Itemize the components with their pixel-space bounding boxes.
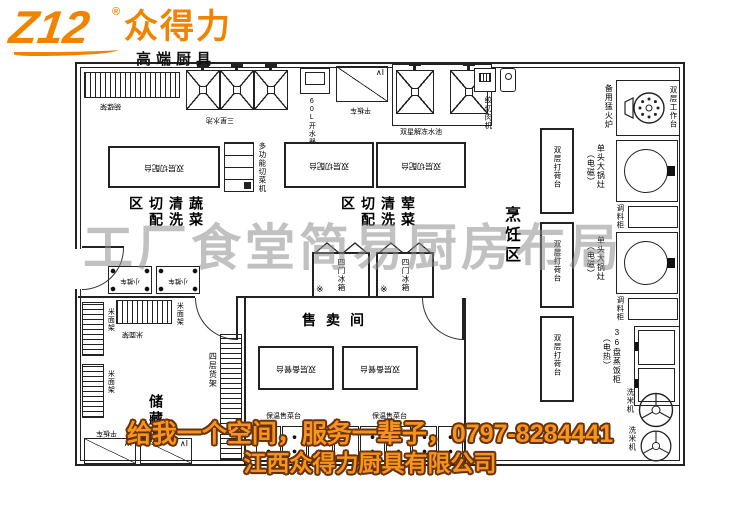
prep-table-1: 双层备餐台 — [258, 346, 334, 390]
three-star-sink-1 — [186, 70, 220, 110]
veg-cut-table-label: 双层切配台 — [144, 163, 184, 171]
meat-cut-table-1-label: 双层切配台 — [309, 161, 349, 169]
rice-flour-rack-left-2 — [82, 364, 104, 418]
four-layer-shelf-label: 四层货架 — [208, 352, 216, 390]
steamer-door-top — [638, 330, 675, 365]
wok-stove-1 — [616, 140, 678, 202]
backup-burner-label: 备用猛火炉 — [604, 84, 612, 130]
service-table-1: 双层打荷台 — [540, 128, 574, 214]
flat-cart-top: ∧I — [336, 66, 388, 102]
service-table-3: 双层打荷台 — [540, 316, 574, 402]
meat-cut-table-2-label: 双层切配台 — [401, 161, 441, 169]
wok-stove-2 — [616, 232, 678, 294]
rice-flour-rack-top-label2: 米面架 — [176, 302, 183, 328]
meat-cut-table-2: 双层切配台 — [376, 142, 466, 188]
veg-cutter-machine — [224, 142, 254, 192]
burner-icon — [619, 85, 669, 131]
rice-flour-rack-top — [116, 300, 172, 324]
watermark-text: 工厂食堂简易厨房布局 — [83, 208, 623, 280]
rice-flour-rack-left-2-label: 米面架 — [107, 370, 114, 396]
faucet-icon — [409, 63, 421, 66]
company-logo: Z12 ® 众得力 高端厨具 — [8, 4, 278, 68]
logo-name: 众得力 — [124, 10, 232, 44]
steamer-handle — [635, 379, 638, 388]
bowl-rack-label: 碗碟架 — [100, 102, 121, 109]
spice-cabinet-1 — [628, 206, 678, 228]
spice-cabinet-2 — [628, 298, 678, 320]
work-table-label: 双层工作台 — [669, 86, 677, 132]
logo-tagline: 高端厨具 — [136, 48, 216, 69]
wok-burner-tab — [667, 166, 675, 176]
cart-direction-mark: ∧I — [376, 69, 384, 77]
faucet-icon — [463, 63, 475, 66]
wok-ring — [624, 241, 668, 285]
rice-flour-rack-left-1 — [82, 302, 104, 356]
veg-cutter-motor — [244, 182, 251, 189]
rice-steamer-label: 36盘蒸饭柜 — [612, 328, 620, 380]
rice-flour-rack-top-label: 米面架 — [122, 330, 143, 337]
prep-table-2: 双层备餐台 — [342, 346, 418, 390]
rice-steamer-note: （电热） — [602, 334, 610, 368]
logo-swoosh — [14, 48, 118, 56]
steamer-handle — [635, 342, 638, 351]
meat-cut-table-1: 双层切配台 — [284, 142, 374, 188]
kitchen-floorplan-canvas: 碗碟架 三星水池 60L开水器 ∧I 平板车 双星解冻水池 绞切肉机 双层切配台… — [0, 0, 750, 530]
sell-room-label: 售卖间 — [302, 310, 374, 330]
flat-cart-top-label: 平板车 — [350, 106, 371, 113]
backup-burner-worktable: 双层工作台 — [616, 80, 680, 136]
wok-stove-1-label: 单头大锅灶 — [596, 144, 604, 190]
prep-table-2-label: 双层备餐台 — [360, 364, 400, 372]
snowflake-icon: ※ — [380, 285, 388, 294]
three-star-sink-3 — [254, 70, 288, 110]
water-boiler — [300, 68, 330, 94]
rice-flour-rack-left-1-label: 米面架 — [107, 308, 114, 334]
logo-mark: Z12 — [7, 4, 93, 50]
water-boiler-tank — [305, 72, 325, 85]
meat-grinder-unit2 — [500, 68, 516, 92]
meat-grinder-knob — [505, 73, 512, 80]
thaw-sink-left — [396, 70, 434, 114]
prep-table-1-label: 双层备餐台 — [276, 364, 316, 372]
entrance-opening — [71, 249, 82, 289]
spice-cabinet-2-label: 调料柜 — [616, 296, 624, 324]
snowflake-icon: ※ — [316, 285, 324, 294]
meat-grinder-label: 绞切肉机 — [484, 96, 492, 134]
footer-company: 江西众得力厨具有限公司 — [60, 444, 680, 478]
veg-cut-table: 双层切配台 — [108, 146, 220, 188]
wok-ring — [624, 149, 668, 193]
wall-storage-top-left — [78, 296, 195, 298]
rice-washer-1-label: 洗米机 — [626, 388, 634, 414]
wok-burner-tab — [667, 258, 675, 268]
wok-stove-1-note: （电磁） — [586, 150, 594, 186]
meat-grinder-detail — [479, 73, 491, 82]
three-star-sink-2 — [220, 70, 254, 110]
bowl-rack — [84, 72, 180, 98]
water-boiler-label: 60L开水器 — [308, 98, 315, 144]
meat-grinder-unit1 — [474, 68, 496, 92]
thaw-sink-label: 双星解冻水池 — [400, 129, 442, 136]
logo-registered-mark: ® — [112, 6, 120, 18]
three-star-sink-label: 三星水池 — [206, 116, 234, 123]
service-table-3-label: 双层打荷台 — [553, 334, 561, 384]
service-table-1-label: 双层打荷台 — [553, 146, 561, 196]
sell-door-leaf — [462, 298, 464, 340]
veg-cutter-label: 多功能切菜机 — [258, 142, 266, 194]
